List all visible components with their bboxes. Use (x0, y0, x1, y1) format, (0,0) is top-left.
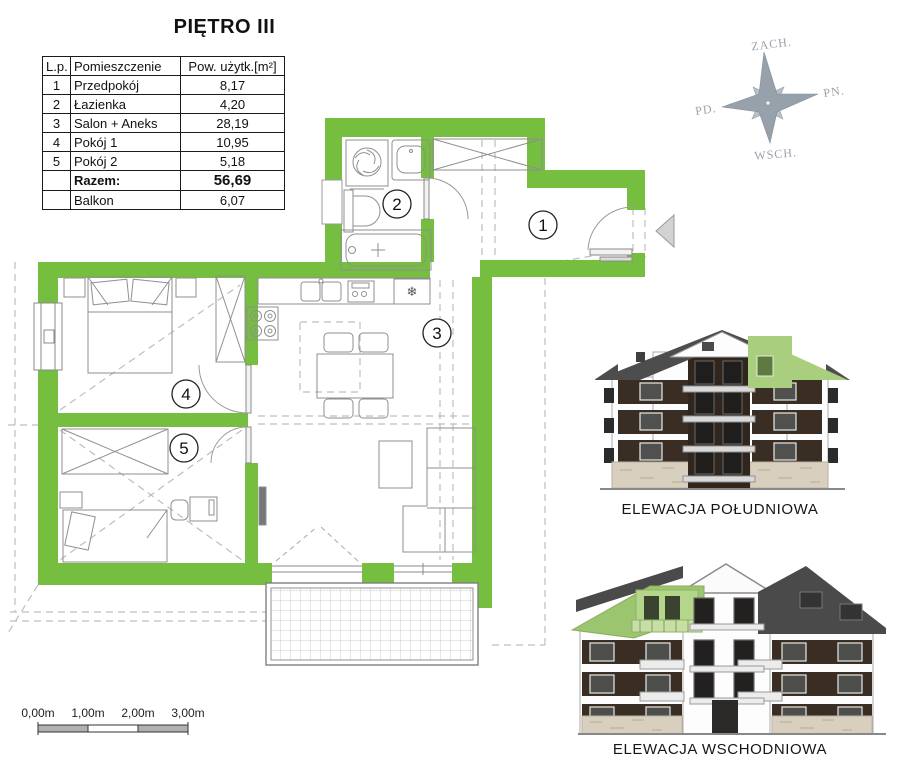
entrance-door (588, 207, 633, 261)
nightstand (64, 278, 85, 297)
svg-text:5: 5 (179, 439, 188, 458)
cell-lp: 1 (43, 76, 71, 95)
east-elevation (570, 558, 895, 758)
cell-area: 8,17 (181, 76, 285, 95)
doors (199, 178, 633, 463)
kitchen-sink (301, 279, 341, 301)
east-elevation-highlight (572, 586, 704, 638)
east-elevation-caption: ELEWACJA WSCHODNIOWA (560, 741, 880, 758)
balcony (266, 583, 478, 665)
compass-star (722, 52, 818, 143)
svg-text:3: 3 (432, 324, 441, 343)
wardrobe (216, 276, 245, 362)
svg-text:1: 1 (538, 216, 547, 235)
bathroom-door (424, 178, 468, 219)
compass-label-east: WSCH. (754, 145, 798, 163)
compass-label-west: ZACH. (750, 35, 792, 54)
corner-sofa (403, 428, 475, 552)
floorplan-sheet: PIĘTRO III L.p. Pomieszczenie Pow. użytk… (0, 0, 901, 768)
table-header-row: L.p. Pomieszczenie Pow. użytk.[m²] (43, 57, 285, 76)
living-room-furniture (259, 333, 475, 552)
windows (34, 303, 452, 575)
kitchen-counter (258, 278, 430, 304)
scale-label-2: 2,00m (113, 706, 163, 720)
scale-label-1: 1,00m (63, 706, 113, 720)
side-table (379, 441, 412, 488)
single-bed (63, 510, 167, 562)
small-appliance (348, 281, 374, 302)
hall-wardrobe (433, 139, 542, 170)
col-header-area: Pow. użytk.[m²] (181, 57, 285, 76)
entrance-arrow-icon (656, 215, 674, 247)
wardrobe (62, 429, 168, 474)
desk-chair (171, 500, 188, 520)
fridge-snowflake-icon: ❄ (407, 284, 418, 299)
toilet (344, 190, 380, 232)
tv (259, 487, 266, 525)
south-elevation-caption: ELEWACJA POŁUDNIOWA (575, 501, 865, 518)
room-badge-3: 3 (423, 319, 451, 347)
svg-text:4: 4 (181, 385, 190, 404)
scale-label-0: 0,00m (13, 706, 63, 720)
double-bed (88, 277, 172, 373)
page-title: PIĘTRO III (147, 16, 302, 39)
dining-table-set (317, 333, 393, 418)
south-elevation-center (683, 356, 755, 488)
room4-furniture (64, 276, 245, 373)
table-row: 1 Przedpokój 8,17 (43, 76, 285, 95)
col-header-lp: L.p. (43, 57, 71, 76)
col-header-room: Pomieszczenie (71, 57, 181, 76)
room-badge-1: 1 (529, 211, 557, 239)
south-elevation (595, 320, 895, 530)
room-badge-5: 5 (170, 434, 198, 462)
wall-duct-niche (322, 180, 342, 224)
desk (190, 497, 217, 521)
compass-rose: ZACH. PN. PD. WSCH. (690, 28, 870, 168)
balcony-door-swing (276, 527, 358, 561)
room4-door (199, 365, 251, 413)
scale-label-3: 3,00m (163, 706, 213, 720)
kitchen (247, 278, 430, 340)
room5-door (211, 427, 251, 463)
compass-label-north: PN. (822, 83, 845, 100)
nightstand (176, 278, 196, 297)
svg-text:2: 2 (392, 195, 401, 214)
washing-machine (346, 140, 388, 189)
cell-room: Przedpokój (71, 76, 181, 95)
nightstand (60, 492, 82, 508)
scale-bar (30, 720, 200, 740)
room-badge-4: 4 (172, 380, 200, 408)
room-badge-2: 2 (383, 190, 411, 218)
